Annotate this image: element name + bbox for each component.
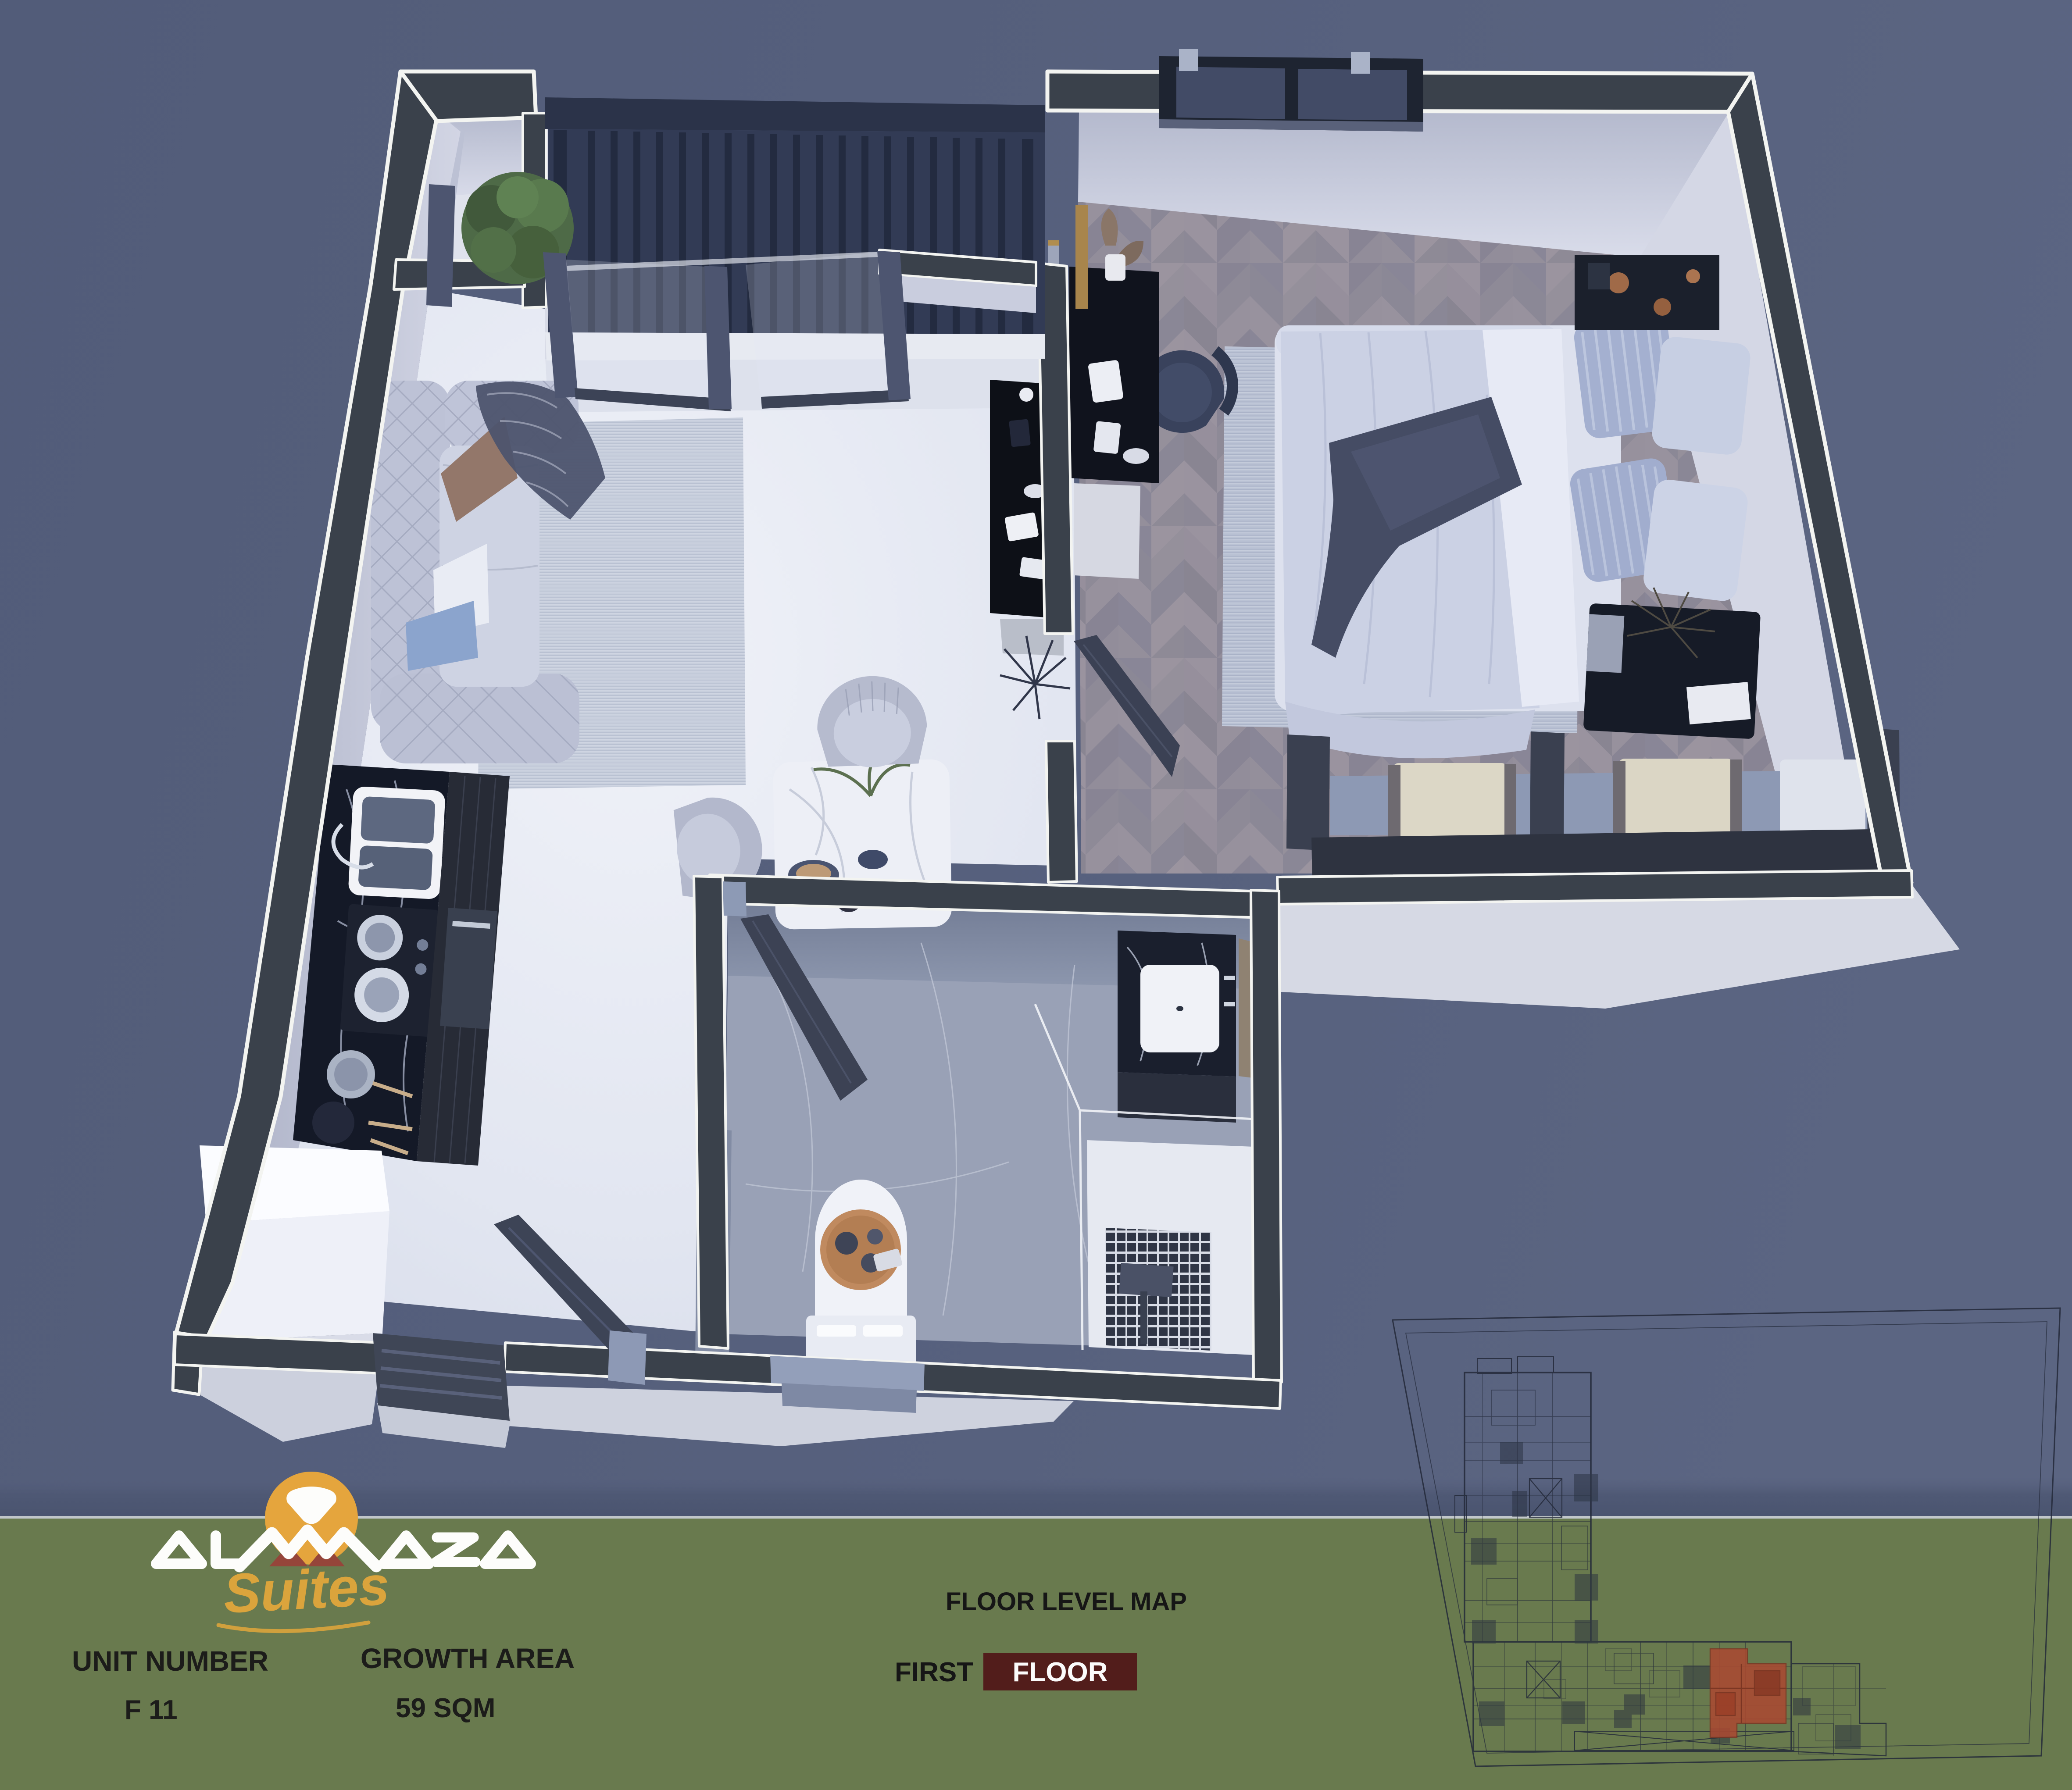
svg-text:FLOOR LEVEL MAP: FLOOR LEVEL MAP <box>946 1587 1187 1616</box>
svg-text:F 11: F 11 <box>125 1695 178 1725</box>
svg-text:FLOOR: FLOOR <box>1013 1657 1108 1687</box>
svg-text:FIRST: FIRST <box>895 1657 973 1687</box>
svg-text:59 SQM: 59 SQM <box>396 1693 495 1723</box>
svg-text:Suites: Suites <box>222 1554 391 1625</box>
svg-text:GROWTH AREA: GROWTH AREA <box>361 1643 575 1674</box>
svg-text:UNIT NUMBER: UNIT NUMBER <box>72 1645 268 1677</box>
